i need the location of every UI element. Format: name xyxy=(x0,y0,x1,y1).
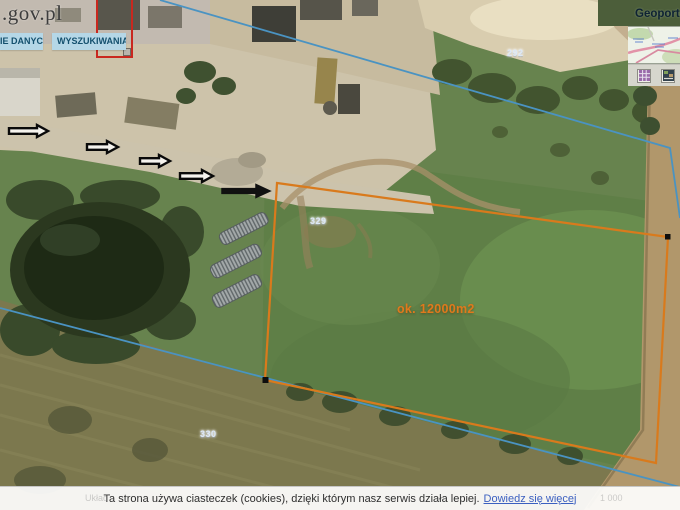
parcel-label: 330 xyxy=(200,429,217,439)
cookie-more-link[interactable]: Dowiedz się więcej xyxy=(484,493,577,505)
area-annotation: ok. 12000m2 xyxy=(397,302,475,316)
cookie-message: Ta strona używa ciasteczek (cookies), dz… xyxy=(104,493,480,505)
site-logo: .gov.pl xyxy=(2,1,62,26)
minimap-icon xyxy=(663,70,674,81)
overview-toolbar xyxy=(628,64,680,86)
tab-dane[interactable]: IE DANYCH xyxy=(0,33,43,50)
legend-icon xyxy=(639,70,650,81)
overview-minimap[interactable] xyxy=(628,26,680,64)
overview-panel-title: Geoportal xyxy=(628,0,680,26)
minimap-toggle-button[interactable] xyxy=(661,69,675,83)
footer-faint-scale: 1 000 xyxy=(600,493,623,503)
parcel-label: 292 xyxy=(507,48,524,58)
aerial-photo-canvas[interactable] xyxy=(0,0,680,510)
cookie-banner: Układ Ta strona używa ciasteczek (cookie… xyxy=(0,486,680,510)
overview-panel: Geoportal xyxy=(628,0,680,84)
footer-faint-text: Układ xyxy=(85,493,108,503)
legend-button[interactable] xyxy=(637,69,651,83)
tab-wyszukiwania[interactable]: WYSZUKIWANIA xyxy=(52,33,126,50)
parcel-label: 329 xyxy=(310,216,327,226)
geoportal-map-view: 292 329 330 ok. 12000m2 .gov.pl IE DANYC… xyxy=(0,0,680,510)
